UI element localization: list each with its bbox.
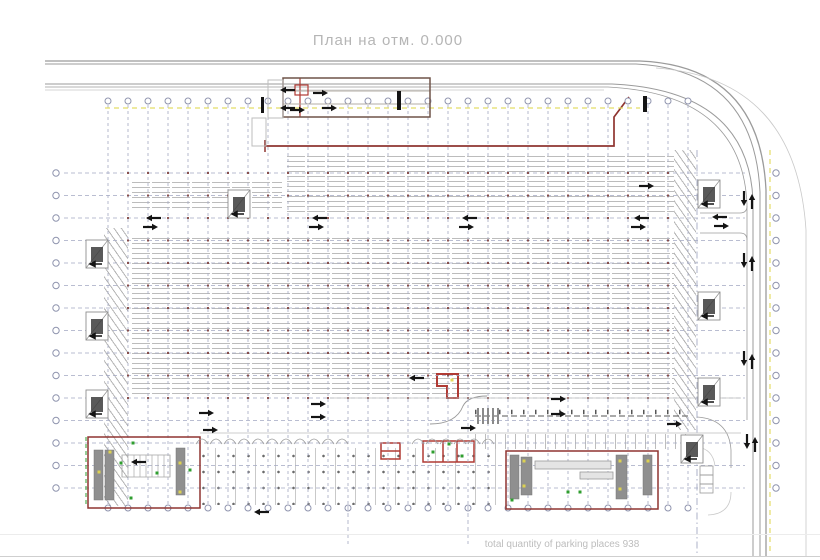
direction-arrow bbox=[667, 421, 682, 427]
detail-rect bbox=[94, 450, 103, 500]
axis-bubble-top bbox=[445, 98, 451, 104]
column-dot bbox=[647, 307, 649, 309]
column-dot bbox=[127, 307, 129, 309]
column-dot bbox=[447, 195, 449, 197]
column-dot bbox=[187, 375, 189, 377]
column-dot bbox=[587, 375, 589, 377]
column-dot bbox=[267, 240, 269, 242]
column-dot bbox=[627, 375, 629, 377]
column-dot bbox=[207, 307, 209, 309]
column-dot bbox=[407, 352, 409, 354]
column-dot bbox=[307, 330, 309, 332]
yellow-marker bbox=[179, 491, 182, 494]
direction-arrow bbox=[203, 427, 218, 433]
column-dot bbox=[647, 285, 649, 287]
axis-bubble-bottom bbox=[445, 505, 451, 511]
column-dot bbox=[327, 285, 329, 287]
crosswalk-bar bbox=[477, 408, 479, 424]
column-dot bbox=[427, 352, 429, 354]
column-dot bbox=[487, 240, 489, 242]
axis-bubble-left bbox=[53, 192, 59, 198]
column-dot bbox=[207, 172, 209, 174]
yellow-marker bbox=[523, 485, 526, 488]
column-dot bbox=[447, 172, 449, 174]
column-dot bbox=[547, 307, 549, 309]
column-dot bbox=[427, 262, 429, 264]
axis-bubble-left bbox=[53, 282, 59, 288]
column-dot bbox=[127, 262, 129, 264]
column-dot bbox=[287, 375, 289, 377]
axis-bubble-top bbox=[205, 98, 211, 104]
detail-rect bbox=[580, 472, 613, 479]
direction-arrow bbox=[741, 253, 747, 268]
column-dot bbox=[547, 330, 549, 332]
column-dot bbox=[267, 397, 269, 399]
column-dot bbox=[667, 330, 669, 332]
plan-svg bbox=[0, 0, 820, 560]
column-dot bbox=[627, 330, 629, 332]
axis-bubble-bottom bbox=[365, 505, 371, 511]
road-or-outline-path bbox=[437, 374, 458, 398]
green-marker bbox=[132, 442, 135, 445]
column-dot bbox=[367, 352, 369, 354]
green-marker bbox=[156, 472, 159, 475]
page-bottom-rule bbox=[0, 556, 820, 557]
column-dot bbox=[347, 307, 349, 309]
axis-bubble-top bbox=[405, 98, 411, 104]
column-dot bbox=[667, 240, 669, 242]
column-dot bbox=[567, 352, 569, 354]
column-dot bbox=[187, 352, 189, 354]
column-dot bbox=[587, 352, 589, 354]
axis-bubble-top bbox=[625, 98, 631, 104]
column-dot bbox=[547, 285, 549, 287]
column-dot bbox=[507, 330, 509, 332]
entrance-bar bbox=[397, 91, 401, 110]
column-dot bbox=[627, 172, 629, 174]
column-dot bbox=[647, 195, 649, 197]
column-dot bbox=[427, 285, 429, 287]
column-dot bbox=[607, 240, 609, 242]
column-dot bbox=[427, 217, 429, 219]
column-dot bbox=[227, 307, 229, 309]
yellow-marker bbox=[619, 488, 622, 491]
column-dot bbox=[347, 240, 349, 242]
column-dot bbox=[247, 397, 249, 399]
column-dot bbox=[187, 172, 189, 174]
column-dot bbox=[427, 330, 429, 332]
column-dot bbox=[607, 330, 609, 332]
green-marker bbox=[461, 455, 464, 458]
crosswalk-bar bbox=[497, 408, 499, 424]
column-dot bbox=[207, 217, 209, 219]
column-dot bbox=[207, 330, 209, 332]
column-dot bbox=[407, 375, 409, 377]
column-dot bbox=[567, 172, 569, 174]
axis-bubble-top bbox=[285, 98, 291, 104]
column-dot bbox=[267, 172, 269, 174]
axis-bubble-top bbox=[105, 98, 111, 104]
column-dot bbox=[627, 217, 629, 219]
direction-arrow bbox=[639, 183, 654, 189]
axis-bubble-right bbox=[773, 192, 779, 198]
column-dot bbox=[187, 397, 189, 399]
axis-bubble-right bbox=[773, 440, 779, 446]
column-dot bbox=[527, 172, 529, 174]
column-dot bbox=[347, 330, 349, 332]
road-or-outline-path bbox=[45, 64, 760, 556]
road-or-outline-path bbox=[708, 492, 731, 515]
column-dot bbox=[367, 217, 369, 219]
column-dot bbox=[327, 307, 329, 309]
column-dot bbox=[127, 352, 129, 354]
column-dot bbox=[507, 172, 509, 174]
yellow-marker bbox=[98, 471, 101, 474]
direction-arrow bbox=[462, 215, 477, 221]
column-dot bbox=[467, 172, 469, 174]
column-dot bbox=[167, 307, 169, 309]
column-dot bbox=[387, 375, 389, 377]
column-dot bbox=[607, 307, 609, 309]
column-dot bbox=[447, 240, 449, 242]
column-dot bbox=[127, 240, 129, 242]
column-dot bbox=[187, 307, 189, 309]
column-dot bbox=[447, 375, 449, 377]
column-dot bbox=[467, 195, 469, 197]
direction-arrow bbox=[459, 224, 474, 230]
green-marker bbox=[189, 469, 192, 472]
column-dot bbox=[407, 330, 409, 332]
column-dot bbox=[587, 330, 589, 332]
column-dot bbox=[287, 217, 289, 219]
column-dot bbox=[207, 240, 209, 242]
column-dot bbox=[487, 172, 489, 174]
axis-bubble-bottom bbox=[605, 505, 611, 511]
column-dot bbox=[347, 352, 349, 354]
column-dot bbox=[287, 195, 289, 197]
yellow-marker bbox=[523, 460, 526, 463]
column-dot bbox=[287, 330, 289, 332]
axis-bubble-top bbox=[565, 98, 571, 104]
column-dot bbox=[167, 217, 169, 219]
column-dot bbox=[607, 262, 609, 264]
axis-bubble-right bbox=[773, 372, 779, 378]
yellow-marker bbox=[451, 379, 454, 382]
stair-core-glyph bbox=[91, 397, 103, 412]
column-dot bbox=[647, 352, 649, 354]
column-dot bbox=[287, 172, 289, 174]
axis-bubble-top bbox=[245, 98, 251, 104]
column-dot bbox=[507, 352, 509, 354]
detail-rect bbox=[700, 475, 713, 484]
column-dot bbox=[467, 262, 469, 264]
column-dot bbox=[307, 172, 309, 174]
column-dot bbox=[527, 330, 529, 332]
column-dot bbox=[407, 217, 409, 219]
direction-arrow bbox=[322, 105, 337, 111]
column-dot bbox=[147, 240, 149, 242]
column-dot bbox=[327, 240, 329, 242]
axis-bubble-top bbox=[605, 98, 611, 104]
column-dot bbox=[447, 307, 449, 309]
axis-bubble-top bbox=[385, 98, 391, 104]
axis-bubble-bottom bbox=[205, 505, 211, 511]
axis-bubble-left bbox=[53, 327, 59, 333]
column-dot bbox=[427, 195, 429, 197]
column-dot bbox=[187, 285, 189, 287]
column-dot bbox=[667, 285, 669, 287]
column-dot bbox=[307, 397, 309, 399]
column-dot bbox=[247, 352, 249, 354]
column-dot bbox=[387, 307, 389, 309]
axis-bubble-bottom bbox=[265, 505, 271, 511]
axis-bubble-right bbox=[773, 462, 779, 468]
axis-bubble-right bbox=[773, 485, 779, 491]
column-dot bbox=[667, 352, 669, 354]
column-dot bbox=[607, 172, 609, 174]
column-dot bbox=[387, 172, 389, 174]
column-dot bbox=[307, 262, 309, 264]
axis-bubble-left bbox=[53, 350, 59, 356]
column-dot bbox=[187, 217, 189, 219]
column-dot bbox=[507, 217, 509, 219]
axis-bubble-top bbox=[305, 98, 311, 104]
column-dot bbox=[307, 195, 309, 197]
column-dot bbox=[407, 285, 409, 287]
axis-bubble-bottom bbox=[245, 505, 251, 511]
axis-bubble-right bbox=[773, 417, 779, 423]
axis-bubble-top bbox=[145, 98, 151, 104]
column-dot bbox=[487, 307, 489, 309]
crosswalk-bar bbox=[487, 408, 489, 424]
column-dot bbox=[207, 352, 209, 354]
column-dot bbox=[407, 172, 409, 174]
column-dot bbox=[467, 240, 469, 242]
column-dot bbox=[367, 307, 369, 309]
column-dot bbox=[327, 375, 329, 377]
column-dot bbox=[127, 397, 129, 399]
column-dot bbox=[267, 195, 269, 197]
direction-arrow bbox=[749, 354, 755, 369]
column-dot bbox=[627, 352, 629, 354]
column-dot bbox=[167, 330, 169, 332]
column-dot bbox=[447, 262, 449, 264]
direction-arrow bbox=[309, 224, 324, 230]
entrance-bar bbox=[261, 97, 264, 113]
column-dot bbox=[127, 330, 129, 332]
column-dot bbox=[167, 285, 169, 287]
column-dot bbox=[447, 330, 449, 332]
column-dot bbox=[407, 262, 409, 264]
column-dot bbox=[547, 240, 549, 242]
column-dot bbox=[227, 352, 229, 354]
detail-rect bbox=[700, 484, 713, 493]
axis-bubble-bottom bbox=[665, 505, 671, 511]
column-dot bbox=[427, 172, 429, 174]
axis-bubble-bottom bbox=[585, 505, 591, 511]
column-dot bbox=[247, 262, 249, 264]
column-dot bbox=[547, 375, 549, 377]
column-dot bbox=[327, 352, 329, 354]
column-dot bbox=[427, 240, 429, 242]
axis-bubble-left bbox=[53, 440, 59, 446]
column-dot bbox=[587, 307, 589, 309]
column-dot bbox=[627, 285, 629, 287]
column-dot bbox=[447, 352, 449, 354]
green-marker bbox=[130, 497, 133, 500]
column-dot bbox=[347, 285, 349, 287]
column-dot bbox=[647, 172, 649, 174]
column-dot bbox=[507, 262, 509, 264]
yellow-marker bbox=[647, 460, 650, 463]
column-dot bbox=[467, 352, 469, 354]
column-dot bbox=[307, 217, 309, 219]
column-dot bbox=[147, 262, 149, 264]
column-dot bbox=[347, 375, 349, 377]
axis-bubble-right bbox=[773, 170, 779, 176]
column-dot bbox=[387, 240, 389, 242]
axis-bubble-top bbox=[525, 98, 531, 104]
road-or-outline-path bbox=[656, 68, 806, 556]
yellow-marker bbox=[179, 462, 182, 465]
yellow-marker bbox=[619, 460, 622, 463]
footer-divider bbox=[0, 534, 820, 535]
column-dot bbox=[247, 240, 249, 242]
column-dot bbox=[647, 262, 649, 264]
column-dot bbox=[607, 217, 609, 219]
axis-bubble-top bbox=[685, 98, 691, 104]
column-dot bbox=[507, 307, 509, 309]
column-dot bbox=[227, 240, 229, 242]
column-dot bbox=[607, 195, 609, 197]
direction-arrow bbox=[741, 351, 747, 366]
axis-bubble-left bbox=[53, 417, 59, 423]
green-marker bbox=[511, 499, 514, 502]
direction-arrow bbox=[712, 214, 727, 220]
axis-bubble-right bbox=[773, 215, 779, 221]
column-dot bbox=[247, 375, 249, 377]
column-dot bbox=[407, 195, 409, 197]
axis-bubble-top bbox=[585, 98, 591, 104]
column-dot bbox=[607, 285, 609, 287]
column-dot bbox=[147, 195, 149, 197]
column-dot bbox=[647, 240, 649, 242]
column-dot bbox=[547, 262, 549, 264]
column-dot bbox=[487, 375, 489, 377]
column-dot bbox=[427, 375, 429, 377]
axis-bubble-bottom bbox=[565, 505, 571, 511]
column-dot bbox=[287, 262, 289, 264]
column-dot bbox=[167, 397, 169, 399]
column-dot bbox=[127, 375, 129, 377]
detail-rect bbox=[105, 450, 114, 500]
green-marker bbox=[120, 462, 123, 465]
column-dot bbox=[167, 240, 169, 242]
column-dot bbox=[547, 352, 549, 354]
column-dot bbox=[207, 285, 209, 287]
axis-bubble-left bbox=[53, 305, 59, 311]
column-dot bbox=[127, 285, 129, 287]
axis-bubble-right bbox=[773, 395, 779, 401]
axis-bubble-top bbox=[665, 98, 671, 104]
column-dot bbox=[267, 217, 269, 219]
column-dot bbox=[147, 352, 149, 354]
axis-bubble-left bbox=[53, 462, 59, 468]
direction-arrow bbox=[311, 401, 326, 407]
column-dot bbox=[627, 240, 629, 242]
column-dot bbox=[587, 285, 589, 287]
axis-bubble-top bbox=[545, 98, 551, 104]
entrance-bar bbox=[643, 96, 647, 112]
column-dot bbox=[207, 375, 209, 377]
axis-bubble-top bbox=[325, 98, 331, 104]
column-dot bbox=[307, 352, 309, 354]
column-dot bbox=[127, 217, 129, 219]
column-dot bbox=[367, 262, 369, 264]
column-dot bbox=[167, 262, 169, 264]
column-dot bbox=[487, 330, 489, 332]
column-dot bbox=[367, 240, 369, 242]
axis-bubble-left bbox=[53, 170, 59, 176]
column-dot bbox=[187, 330, 189, 332]
column-dot bbox=[247, 307, 249, 309]
detail-rect bbox=[535, 461, 611, 469]
column-dot bbox=[327, 217, 329, 219]
axis-bubble-right bbox=[773, 237, 779, 243]
column-dot bbox=[267, 352, 269, 354]
column-dot bbox=[207, 195, 209, 197]
column-dot bbox=[567, 307, 569, 309]
column-dot bbox=[667, 172, 669, 174]
column-dot bbox=[567, 375, 569, 377]
detail-rect bbox=[700, 466, 713, 475]
column-dot bbox=[147, 285, 149, 287]
detail-rect bbox=[521, 457, 532, 495]
column-dot bbox=[507, 285, 509, 287]
axis-bubble-bottom bbox=[305, 505, 311, 511]
column-dot bbox=[607, 352, 609, 354]
axis-bubble-bottom bbox=[525, 505, 531, 511]
direction-arrow bbox=[311, 414, 326, 420]
axis-bubble-top bbox=[365, 98, 371, 104]
column-dot bbox=[587, 240, 589, 242]
column-dot bbox=[147, 375, 149, 377]
green-marker bbox=[567, 491, 570, 494]
column-dot bbox=[327, 172, 329, 174]
column-dot bbox=[227, 375, 229, 377]
column-dot bbox=[507, 240, 509, 242]
column-dot bbox=[607, 375, 609, 377]
column-dot bbox=[367, 172, 369, 174]
column-dot bbox=[367, 195, 369, 197]
column-dot bbox=[187, 240, 189, 242]
column-dot bbox=[527, 217, 529, 219]
column-dot bbox=[307, 240, 309, 242]
column-dot bbox=[287, 240, 289, 242]
column-dot bbox=[347, 172, 349, 174]
column-dot bbox=[527, 285, 529, 287]
column-dot bbox=[627, 262, 629, 264]
axis-bubble-bottom bbox=[385, 505, 391, 511]
column-dot bbox=[387, 195, 389, 197]
column-dot bbox=[527, 352, 529, 354]
column-dot bbox=[227, 397, 229, 399]
crosswalk-bar bbox=[482, 408, 484, 424]
column-dot bbox=[667, 375, 669, 377]
green-marker bbox=[432, 451, 435, 454]
column-dot bbox=[267, 285, 269, 287]
column-dot bbox=[267, 307, 269, 309]
